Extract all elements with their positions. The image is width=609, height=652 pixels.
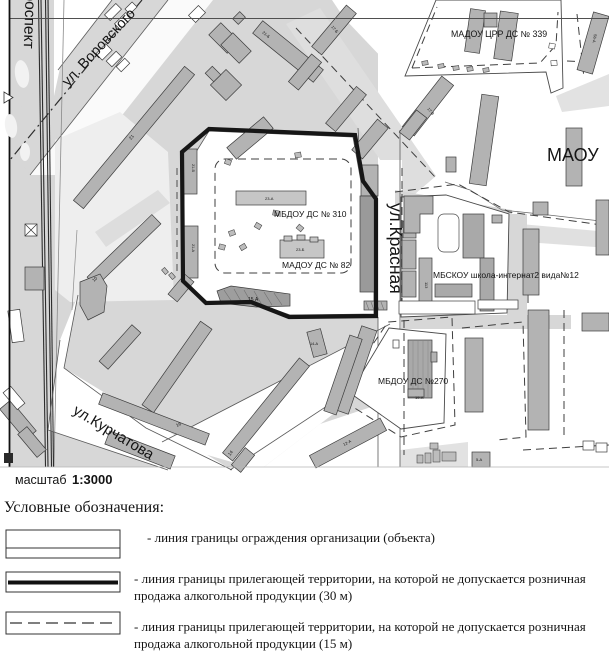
svg-text:15 А: 15 А [248, 297, 259, 303]
svg-text:- линия границы прилегающей те: - линия границы прилегающей территории, … [134, 619, 586, 634]
svg-text:продажа алкогольной продукции: продажа алкогольной продукции (30 м) [134, 588, 352, 603]
svg-text:МБДОУ ДС №270: МБДОУ ДС №270 [378, 376, 448, 386]
svg-text:ул.Красная: ул.Красная [386, 203, 406, 294]
svg-text:- линия границы прилегающей те: - линия границы прилегающей территории, … [134, 571, 586, 586]
svg-text:продажа алкогольной продукции: продажа алкогольной продукции (15 м) [134, 636, 352, 651]
svg-text:113: 113 [424, 282, 429, 289]
svg-text:МБДОУ ДС № 310: МБДОУ ДС № 310 [274, 209, 347, 219]
svg-text:19-А: 19-А [415, 395, 424, 400]
svg-text:1:3000: 1:3000 [72, 472, 112, 487]
svg-text:МАДОУ ЦРР ДС № 339: МАДОУ ЦРР ДС № 339 [451, 29, 547, 39]
svg-text:14-А: 14-А [310, 342, 318, 346]
svg-text:МАОУ: МАОУ [547, 145, 599, 165]
svg-text:- линия границы ограждения орг: - линия границы ограждения организации (… [147, 530, 435, 545]
svg-text:21-В: 21-В [191, 164, 195, 172]
svg-text:проспект: проспект [20, 0, 39, 49]
svg-text:Условные обозначения:: Условные обозначения: [4, 499, 164, 516]
svg-text:23-А: 23-А [265, 196, 274, 201]
svg-text:21-А: 21-А [191, 244, 195, 252]
svg-text:масштаб: масштаб [15, 473, 67, 487]
svg-text:МАДОУ ДС № 82: МАДОУ ДС № 82 [282, 260, 350, 270]
svg-text:5-А: 5-А [476, 457, 483, 462]
svg-text:МБСКОУ школа-интернат2 вида№1: МБСКОУ школа-интернат2 вида№12 [433, 270, 579, 280]
svg-text:23-Б: 23-Б [296, 247, 305, 252]
